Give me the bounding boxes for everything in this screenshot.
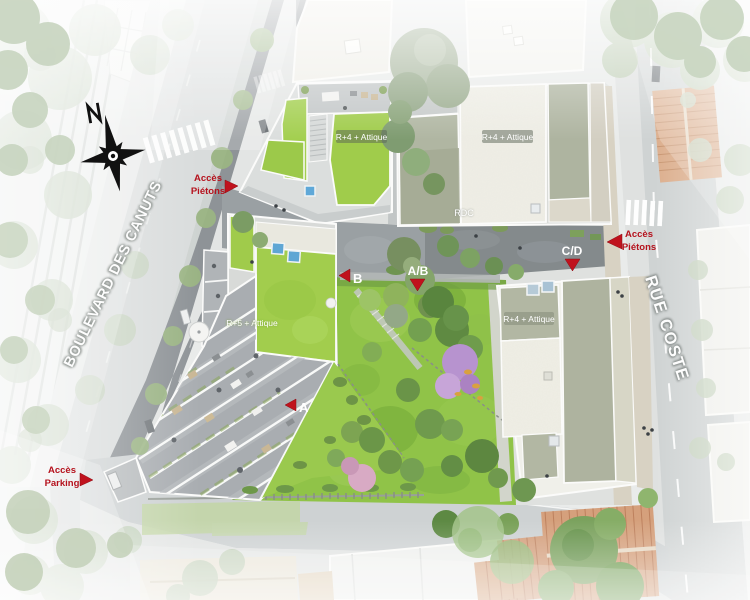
svg-text:RDC: RDC bbox=[454, 208, 474, 218]
svg-text:Piétons: Piétons bbox=[622, 242, 656, 253]
svg-text:R+4 + Attique: R+4 + Attique bbox=[336, 132, 388, 142]
svg-text:C/D: C/D bbox=[562, 244, 583, 258]
svg-text:Accès: Accès bbox=[48, 465, 76, 476]
svg-text:A: A bbox=[299, 400, 309, 415]
svg-text:Accès: Accès bbox=[625, 229, 653, 240]
svg-text:A/B: A/B bbox=[408, 264, 429, 278]
svg-text:R+5 + Attique: R+5 + Attique bbox=[226, 318, 278, 328]
svg-text:Accès: Accès bbox=[194, 173, 222, 184]
svg-text:R+4 + Attique: R+4 + Attique bbox=[503, 314, 555, 324]
svg-text:R+4 + Attique: R+4 + Attique bbox=[482, 132, 534, 142]
svg-text:Parking: Parking bbox=[45, 478, 80, 489]
svg-text:Piétons: Piétons bbox=[191, 186, 225, 197]
svg-text:B: B bbox=[353, 271, 362, 286]
